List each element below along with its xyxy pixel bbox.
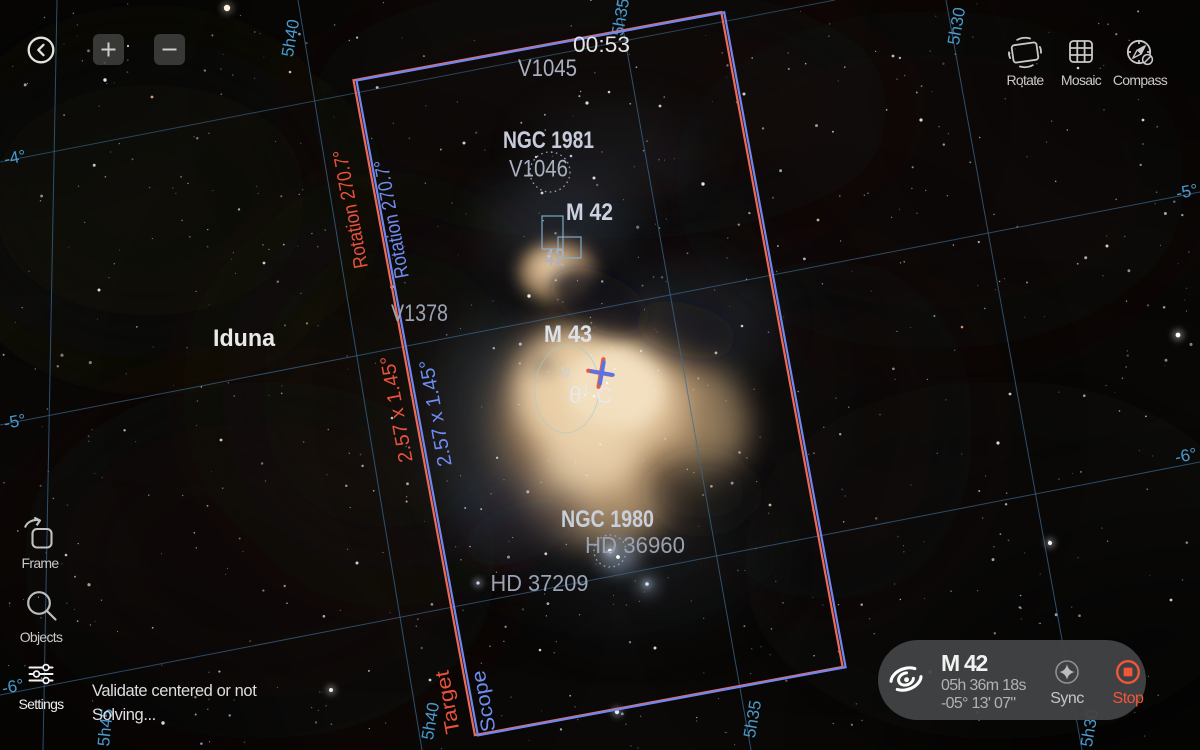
svg-text:V1045: V1045 [518, 55, 577, 82]
svg-text:V1046: V1046 [509, 156, 568, 183]
svg-text:00:53: 00:53 [573, 32, 630, 57]
svg-text:V1378: V1378 [391, 300, 448, 327]
svg-text:HD 36960: HD 36960 [585, 532, 685, 558]
svg-text:Iduna: Iduna [213, 325, 276, 352]
svg-text:M 43: M 43 [544, 321, 592, 348]
svg-text:42: 42 [544, 245, 565, 272]
svg-text:M 42: M 42 [566, 199, 613, 226]
svg-text:ν: ν [561, 361, 571, 383]
svg-text:NGC 1981: NGC 1981 [503, 127, 594, 154]
svg-text:NGC 1980: NGC 1980 [561, 506, 654, 533]
svg-text:θ1 C: θ1 C [569, 381, 613, 408]
svg-text:HD 37209: HD 37209 [491, 570, 589, 596]
